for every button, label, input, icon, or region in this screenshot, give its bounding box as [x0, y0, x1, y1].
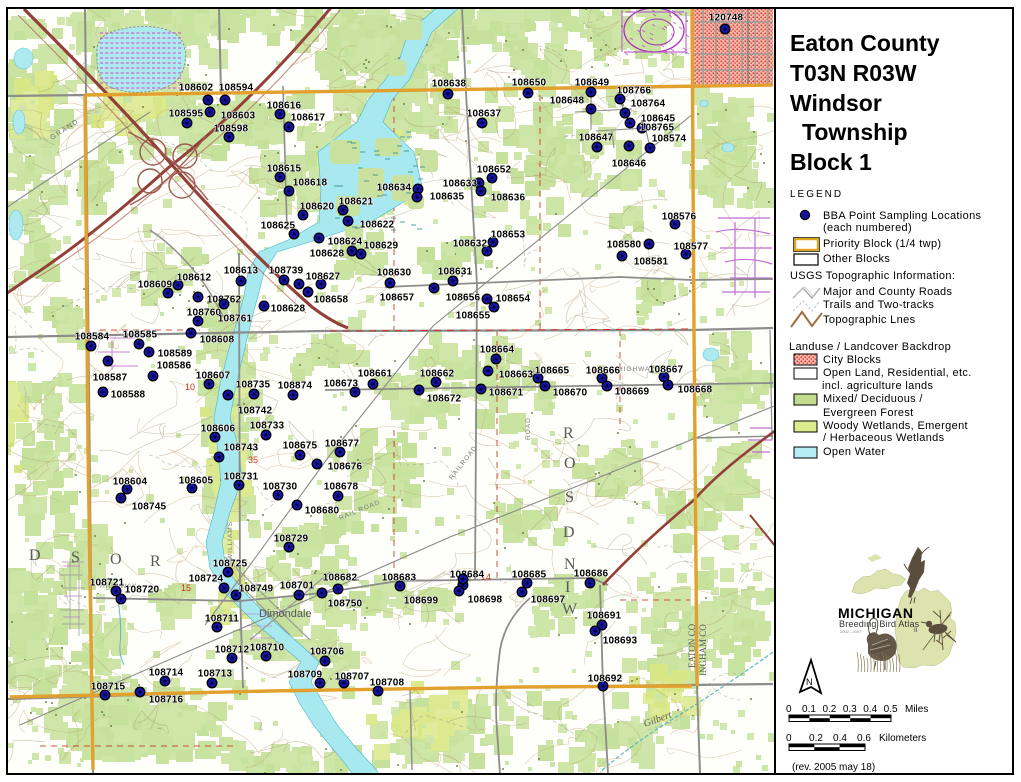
svg-text:108668: 108668: [678, 385, 713, 396]
svg-text:Priority Block (1/4 twp): Priority Block (1/4 twp): [823, 238, 941, 250]
svg-text:108612: 108612: [177, 273, 212, 284]
svg-text:108678: 108678: [324, 482, 359, 493]
svg-text:Windsor: Windsor: [790, 90, 882, 116]
svg-text:0.6: 0.6: [857, 733, 871, 744]
svg-text:108576: 108576: [662, 212, 697, 223]
svg-text:Woody Wetlands, Emergent: Woody Wetlands, Emergent: [823, 420, 968, 432]
svg-text:108664: 108664: [480, 345, 515, 356]
svg-text:108613: 108613: [224, 266, 259, 277]
svg-text:108665: 108665: [535, 366, 570, 377]
svg-text:108729: 108729: [274, 534, 309, 545]
svg-text:108743: 108743: [224, 443, 259, 454]
svg-text:R: R: [563, 425, 574, 442]
svg-text:Dimondale: Dimondale: [259, 608, 312, 620]
svg-text:Evergreen Forest: Evergreen Forest: [823, 407, 914, 419]
svg-text:(each numbered): (each numbered): [823, 222, 912, 234]
svg-text:Other Blocks: Other Blocks: [823, 253, 890, 265]
svg-text:108730: 108730: [263, 482, 298, 493]
svg-text:108692: 108692: [588, 674, 623, 685]
svg-text:0.3: 0.3: [843, 704, 857, 715]
svg-text:108631: 108631: [438, 267, 473, 278]
svg-text:108637: 108637: [467, 109, 502, 120]
svg-text:108585: 108585: [123, 330, 158, 341]
svg-text:108710: 108710: [250, 643, 285, 654]
svg-text:108635: 108635: [430, 192, 465, 203]
svg-text:108711: 108711: [205, 614, 239, 625]
svg-text:108673: 108673: [324, 379, 359, 390]
svg-text:108699: 108699: [404, 596, 439, 607]
svg-text:LEGEND: LEGEND: [790, 189, 843, 200]
svg-text:108720: 108720: [125, 585, 160, 596]
svg-text:108646: 108646: [612, 159, 647, 170]
svg-text:USGS Topographic Information:: USGS Topographic Information:: [790, 270, 955, 282]
svg-text:incl. agriculture lands: incl. agriculture lands: [822, 380, 934, 392]
svg-text:108725: 108725: [213, 559, 248, 570]
svg-text:108638: 108638: [432, 79, 467, 90]
svg-text:108667: 108667: [649, 365, 684, 376]
svg-text:108589: 108589: [158, 349, 193, 360]
svg-text:108636: 108636: [491, 193, 526, 204]
svg-text:108683: 108683: [382, 573, 417, 584]
svg-text:108624: 108624: [328, 237, 363, 248]
svg-text:108608: 108608: [200, 335, 235, 346]
svg-text:108682: 108682: [323, 573, 358, 584]
svg-text:108714: 108714: [149, 668, 184, 679]
svg-text:T03N R03W: T03N R03W: [790, 60, 917, 86]
svg-text:108609: 108609: [138, 280, 173, 291]
svg-text:S: S: [71, 549, 80, 566]
svg-text:108606: 108606: [201, 424, 236, 435]
svg-text:Township: Township: [802, 119, 908, 145]
svg-text:108622: 108622: [360, 220, 395, 231]
svg-text:108669: 108669: [615, 387, 650, 398]
svg-text:108739: 108739: [269, 266, 304, 277]
svg-text:0.4: 0.4: [833, 733, 847, 744]
svg-text:108745: 108745: [132, 502, 167, 513]
svg-text:108653: 108653: [491, 230, 526, 241]
svg-text:108603: 108603: [221, 111, 256, 122]
svg-text:Topographic Lnes: Topographic Lnes: [823, 314, 916, 326]
svg-text:108633: 108633: [443, 179, 478, 190]
svg-text:35: 35: [248, 455, 258, 465]
svg-text:108721: 108721: [90, 578, 125, 589]
svg-text:15: 15: [181, 583, 191, 593]
svg-text:108662: 108662: [420, 369, 455, 380]
svg-text:Major and County Roads: Major and County Roads: [823, 286, 953, 298]
svg-text:Block 1: Block 1: [790, 149, 872, 175]
svg-text:10: 10: [185, 382, 195, 392]
svg-text:108577: 108577: [674, 242, 709, 253]
svg-text:(rev. 2005 may 18): (rev. 2005 may 18): [792, 762, 875, 773]
svg-text:108618: 108618: [293, 178, 328, 189]
svg-text:I: I: [565, 579, 570, 596]
svg-text:108647: 108647: [579, 133, 614, 144]
svg-text:108607: 108607: [196, 371, 231, 382]
svg-text:108649: 108649: [575, 78, 610, 89]
svg-text:108709: 108709: [288, 670, 323, 681]
svg-text:108697: 108697: [531, 595, 566, 606]
svg-text:120748: 120748: [709, 13, 744, 24]
svg-text:108749: 108749: [239, 584, 274, 595]
svg-text:108615: 108615: [267, 164, 302, 175]
svg-text:108765: 108765: [640, 123, 675, 134]
svg-text:108764: 108764: [631, 99, 666, 110]
svg-text:Miles: Miles: [905, 704, 928, 715]
svg-text:Eaton County: Eaton County: [790, 30, 940, 56]
svg-text:108605: 108605: [179, 476, 214, 487]
svg-text:108761: 108761: [218, 314, 253, 325]
svg-text:108693: 108693: [603, 636, 638, 647]
svg-text:/ Herbaceous Wetlands: / Herbaceous Wetlands: [823, 432, 945, 444]
svg-text:108712: 108712: [215, 645, 250, 656]
svg-text:Landuse / Landcover Backdrop: Landuse / Landcover Backdrop: [789, 341, 951, 353]
svg-text:108707: 108707: [335, 672, 370, 683]
svg-text:EATON CO: EATON CO: [687, 623, 697, 668]
svg-text:108657: 108657: [380, 293, 415, 304]
svg-text:WILLIAMS: WILLIAMS: [227, 521, 234, 560]
svg-text:2002 - 2007: 2002 - 2007: [840, 629, 862, 634]
svg-text:108698: 108698: [468, 595, 503, 606]
svg-text:108617: 108617: [291, 113, 326, 124]
svg-text:108715: 108715: [91, 682, 126, 693]
svg-text:City Blocks: City Blocks: [823, 354, 881, 366]
svg-text:108658: 108658: [314, 295, 349, 306]
svg-text:108602: 108602: [179, 83, 214, 94]
svg-text:0: 0: [786, 733, 792, 744]
svg-text:108708: 108708: [370, 678, 405, 689]
svg-text:108598: 108598: [214, 124, 249, 135]
svg-text:108672: 108672: [427, 394, 462, 405]
svg-text:108666: 108666: [586, 366, 621, 377]
svg-text:108733: 108733: [250, 421, 285, 432]
svg-text:O: O: [564, 455, 576, 472]
svg-text:108760: 108760: [187, 308, 222, 319]
svg-text:108677: 108677: [325, 439, 360, 450]
svg-text:108724: 108724: [189, 574, 224, 585]
svg-text:Open Water: Open Water: [823, 446, 885, 458]
svg-text:Mixed/ Deciduous /: Mixed/ Deciduous /: [823, 393, 923, 405]
svg-text:108627: 108627: [306, 272, 341, 283]
svg-text:108670: 108670: [553, 388, 588, 399]
svg-text:108587: 108587: [93, 373, 128, 384]
svg-text:BBA Point Sampling Locations: BBA Point Sampling Locations: [823, 210, 982, 222]
svg-text:108620: 108620: [300, 202, 335, 213]
svg-text:D: D: [29, 547, 41, 564]
svg-text:R: R: [150, 553, 161, 570]
svg-text:108655: 108655: [456, 311, 491, 322]
svg-text:108629: 108629: [364, 241, 399, 252]
svg-text:108661: 108661: [358, 369, 393, 380]
svg-text:D: D: [563, 524, 575, 541]
svg-text:108680: 108680: [305, 506, 340, 517]
svg-text:108675: 108675: [283, 441, 318, 452]
svg-text:O: O: [110, 551, 122, 568]
svg-text:108581: 108581: [634, 257, 669, 268]
svg-text:108766: 108766: [617, 86, 652, 97]
svg-text:0.5: 0.5: [884, 704, 898, 715]
svg-text:108654: 108654: [496, 294, 531, 305]
svg-text:108616: 108616: [267, 101, 302, 112]
svg-text:N: N: [806, 677, 813, 687]
svg-text:108650: 108650: [512, 78, 547, 89]
svg-text:108686: 108686: [574, 569, 609, 580]
svg-text:108731: 108731: [224, 472, 259, 483]
svg-text:108604: 108604: [113, 477, 148, 488]
svg-text:108588: 108588: [111, 390, 146, 401]
svg-text:108676: 108676: [328, 462, 363, 473]
svg-text:108742: 108742: [238, 406, 273, 417]
svg-text:108630: 108630: [377, 268, 412, 279]
svg-text:108663: 108663: [499, 370, 534, 381]
svg-text:108874: 108874: [278, 381, 313, 392]
svg-text:108652: 108652: [477, 165, 512, 176]
svg-text:108656: 108656: [446, 293, 481, 304]
svg-text:108594: 108594: [219, 83, 254, 94]
svg-text:108586: 108586: [157, 361, 192, 372]
svg-text:108574: 108574: [652, 134, 687, 145]
svg-text:108716: 108716: [149, 695, 184, 706]
svg-text:108648: 108648: [550, 96, 585, 107]
svg-text:108595: 108595: [169, 109, 204, 120]
svg-text:108750: 108750: [328, 599, 363, 610]
svg-text:108706: 108706: [310, 647, 345, 658]
svg-text:Trails and Two-tracks: Trails and Two-tracks: [823, 299, 934, 311]
svg-text:108584: 108584: [75, 332, 110, 343]
svg-text:108634: 108634: [377, 183, 412, 194]
svg-text:0.2: 0.2: [822, 704, 836, 715]
svg-text:108685: 108685: [512, 570, 547, 581]
svg-text:108735: 108735: [236, 380, 271, 391]
svg-text:108621: 108621: [339, 197, 374, 208]
svg-text:108580: 108580: [607, 240, 642, 251]
svg-text:108628: 108628: [271, 304, 306, 315]
svg-text:Open Land, Residential, etc.: Open Land, Residential, etc.: [823, 367, 972, 379]
svg-text:108628: 108628: [310, 249, 345, 260]
svg-text:108632: 108632: [453, 239, 488, 250]
svg-text:108713: 108713: [198, 669, 233, 680]
svg-text:0.4: 0.4: [863, 704, 877, 715]
svg-text:0.1: 0.1: [802, 704, 816, 715]
svg-text:108691: 108691: [587, 611, 622, 622]
svg-text:0: 0: [786, 704, 792, 715]
svg-text:108701: 108701: [280, 581, 315, 592]
svg-text:108625: 108625: [261, 221, 296, 232]
svg-text:ROAD: ROAD: [525, 417, 532, 440]
svg-text:INGHAM CO: INGHAM CO: [698, 624, 708, 676]
svg-text:II: II: [914, 628, 918, 634]
svg-text:0.2: 0.2: [809, 733, 823, 744]
svg-text:108671: 108671: [489, 388, 524, 399]
svg-text:Kilometers: Kilometers: [879, 733, 926, 744]
svg-text:S: S: [565, 489, 574, 506]
svg-text:Breeding Bird Atlas: Breeding Bird Atlas: [839, 619, 920, 629]
